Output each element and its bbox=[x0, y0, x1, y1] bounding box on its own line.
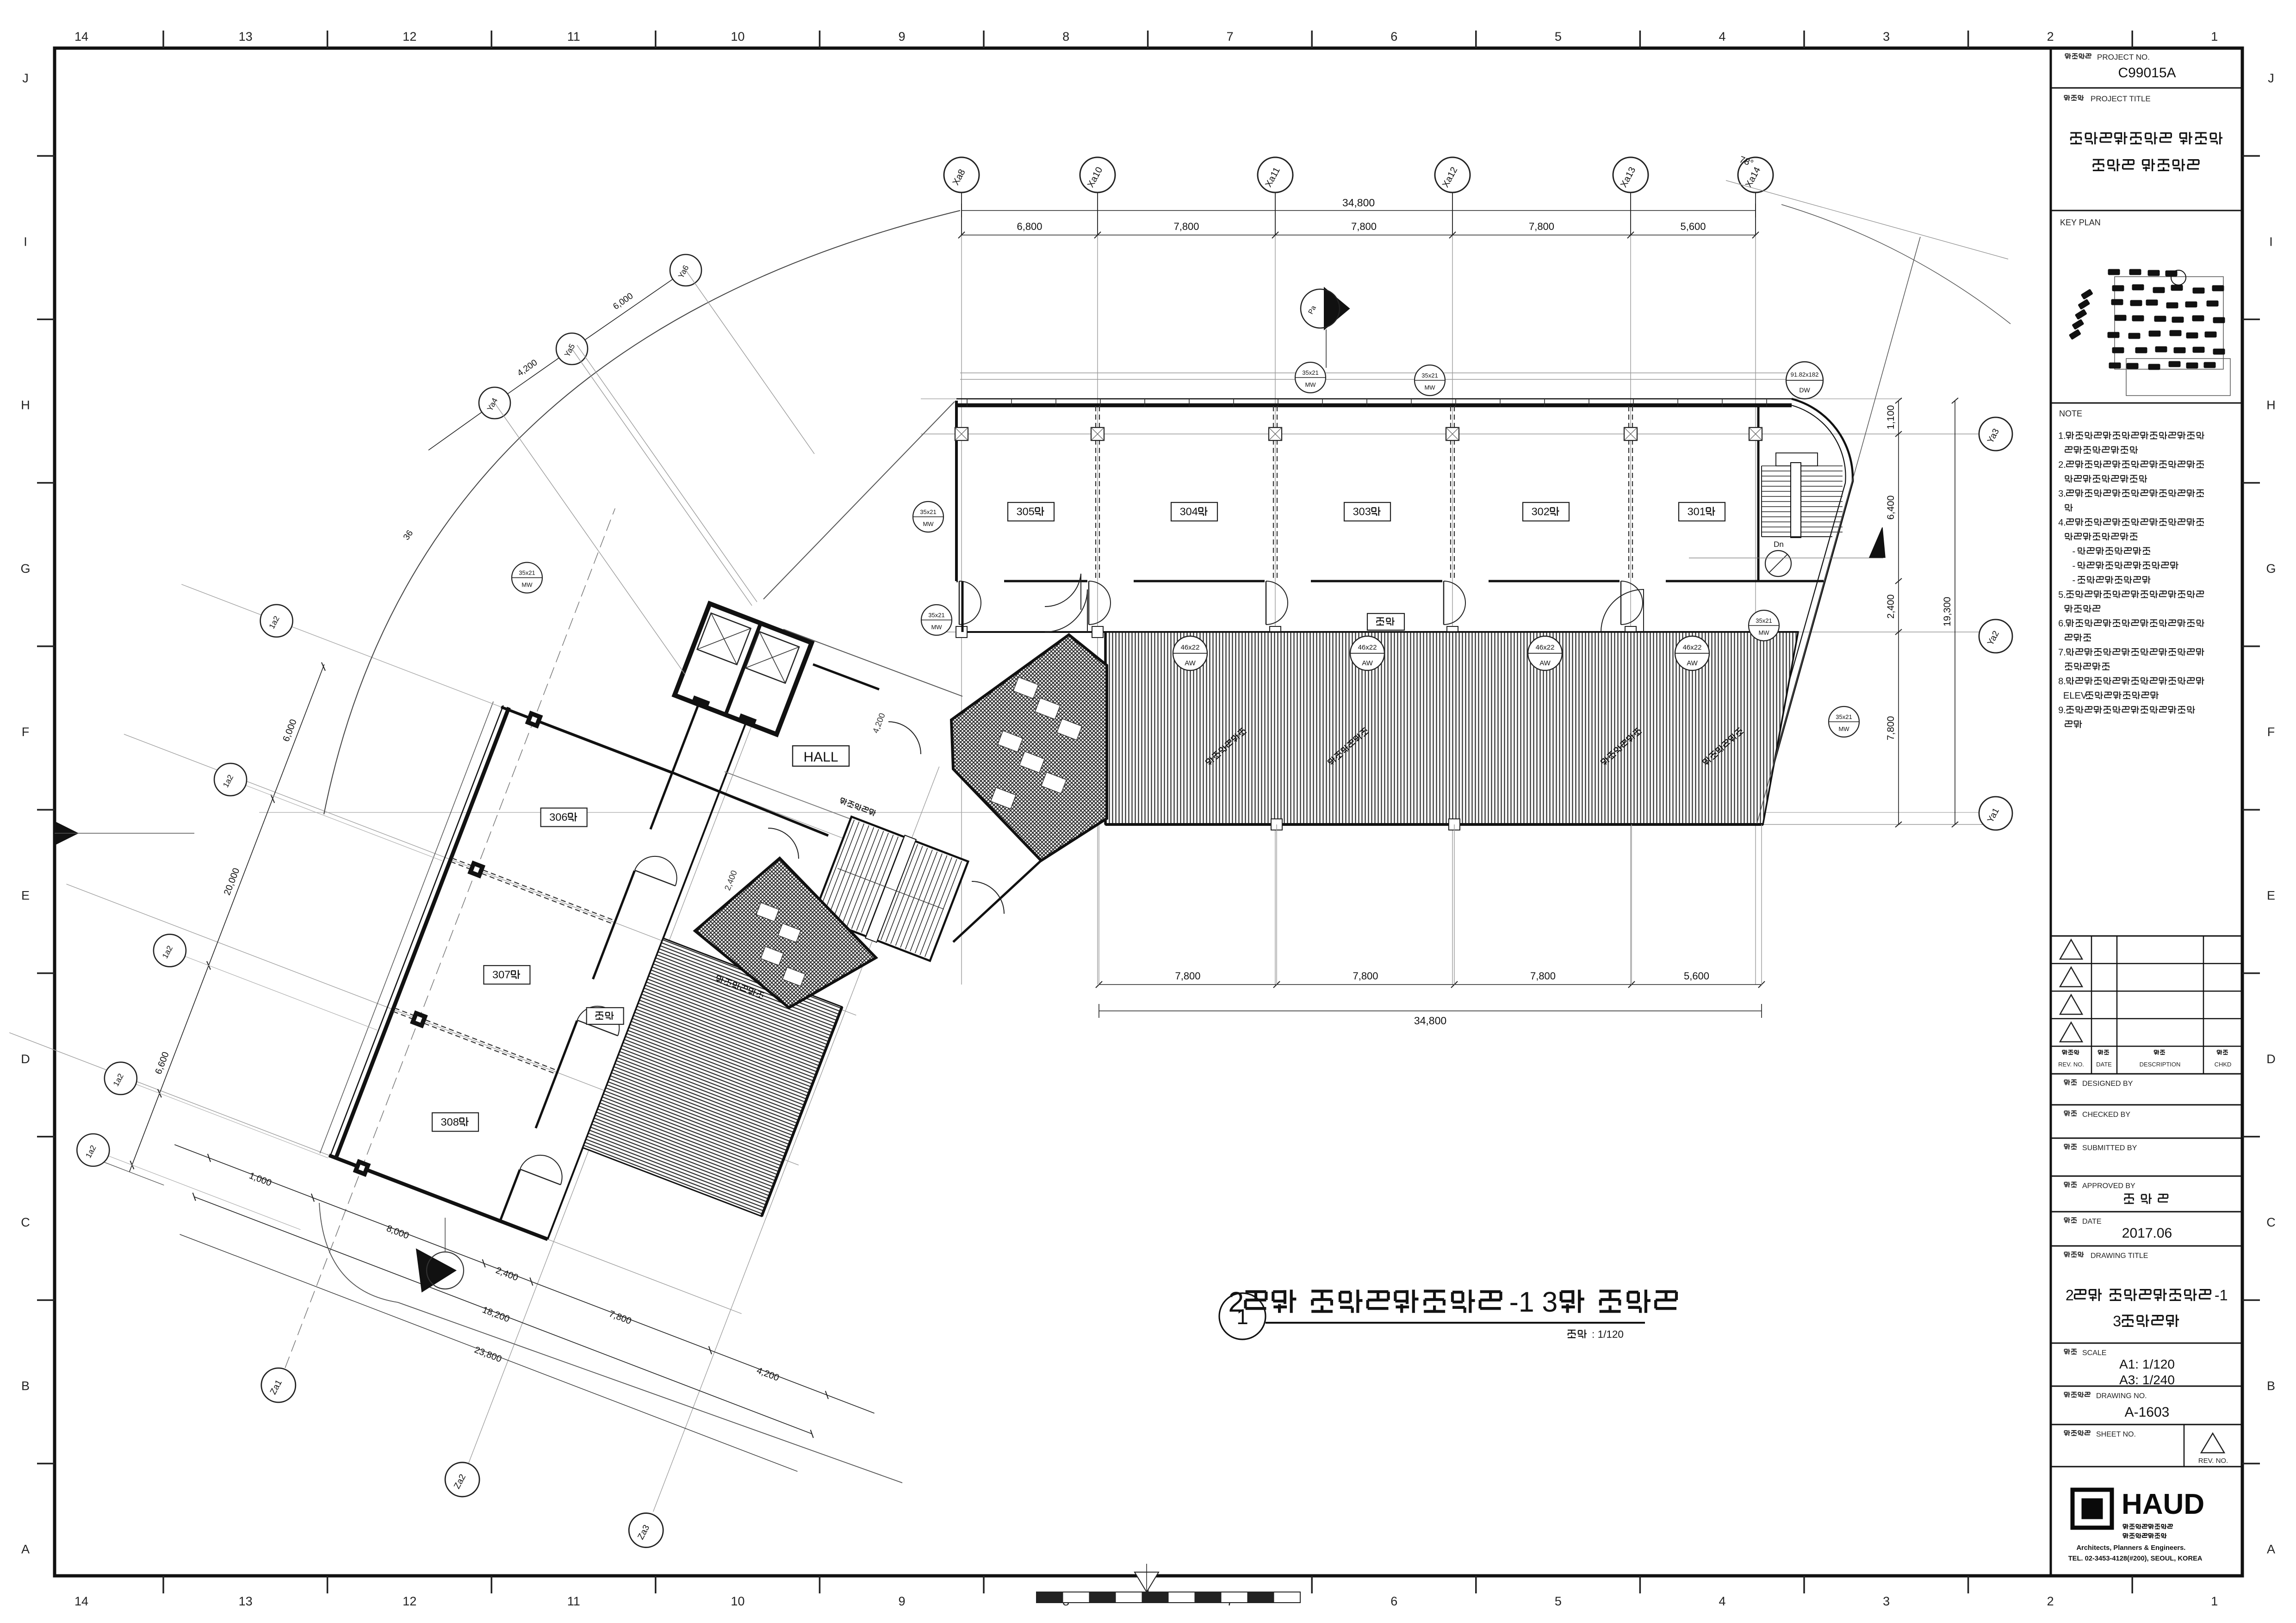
svg-text:5: 5 bbox=[1555, 1594, 1562, 1608]
svg-text:5: 5 bbox=[1555, 30, 1562, 43]
svg-text:TEL. 02-3453-4128(#200), SEOUL: TEL. 02-3453-4128(#200), SEOUL, KOREA bbox=[2068, 1555, 2203, 1562]
svg-text:Architects, Planners & Enginee: Architects, Planners & Engineers. bbox=[2076, 1544, 2185, 1552]
svg-text:AW: AW bbox=[1362, 659, 1373, 667]
svg-text:REV. NO.: REV. NO. bbox=[2058, 1061, 2084, 1068]
svg-text:KEY PLAN: KEY PLAN bbox=[2060, 218, 2101, 227]
svg-text:13: 13 bbox=[239, 1594, 253, 1608]
svg-text:34,800: 34,800 bbox=[1342, 197, 1375, 209]
svg-text:3: 3 bbox=[2113, 1313, 2121, 1330]
svg-text:305: 305 bbox=[1017, 506, 1035, 518]
svg-text:C: C bbox=[2266, 1215, 2276, 1229]
svg-text:-: - bbox=[2072, 561, 2075, 571]
svg-text:2: 2 bbox=[2047, 1594, 2054, 1608]
svg-text:5,600: 5,600 bbox=[1684, 970, 1709, 982]
svg-text:2: 2 bbox=[1228, 1286, 1244, 1318]
svg-text:NOTE: NOTE bbox=[2059, 409, 2082, 418]
svg-text:SUBMITTED BY: SUBMITTED BY bbox=[2082, 1144, 2137, 1152]
svg-text:14: 14 bbox=[74, 1594, 88, 1608]
svg-text:AW: AW bbox=[1687, 659, 1698, 667]
svg-text:12: 12 bbox=[403, 30, 416, 43]
svg-text:1: 1 bbox=[2211, 30, 2218, 43]
svg-text:DRAWING TITLE: DRAWING TITLE bbox=[2091, 1252, 2148, 1260]
svg-text:MW: MW bbox=[923, 520, 934, 527]
svg-text:303: 303 bbox=[1353, 506, 1371, 518]
svg-text:13: 13 bbox=[239, 30, 253, 43]
svg-text:-1 3: -1 3 bbox=[1509, 1286, 1558, 1318]
svg-text:MW: MW bbox=[1758, 629, 1769, 636]
svg-text:19,300: 19,300 bbox=[1942, 597, 1953, 626]
svg-text:7: 7 bbox=[1227, 30, 1234, 43]
svg-text:-: - bbox=[2072, 546, 2075, 557]
svg-text:MW: MW bbox=[931, 624, 942, 631]
svg-text:3: 3 bbox=[1883, 30, 1890, 43]
svg-text:7,800: 7,800 bbox=[1175, 970, 1200, 982]
svg-text:E: E bbox=[21, 889, 30, 903]
svg-text:10: 10 bbox=[731, 30, 745, 43]
svg-text:H: H bbox=[21, 398, 30, 412]
svg-text:10: 10 bbox=[731, 1594, 745, 1608]
svg-text:PROJECT NO.: PROJECT NO. bbox=[2097, 53, 2150, 62]
svg-text:F: F bbox=[22, 725, 30, 739]
svg-text:DESIGNED BY: DESIGNED BY bbox=[2082, 1080, 2133, 1088]
svg-text:G: G bbox=[2266, 562, 2276, 576]
svg-text:5,600: 5,600 bbox=[1680, 221, 1706, 232]
svg-text:3.: 3. bbox=[2058, 489, 2066, 499]
svg-text:APPROVED BY: APPROVED BY bbox=[2082, 1182, 2135, 1190]
svg-text:ELEV: ELEV bbox=[2063, 691, 2087, 701]
svg-text:4.: 4. bbox=[2058, 518, 2066, 528]
svg-text:46x22: 46x22 bbox=[1181, 644, 1200, 651]
svg-text:-1: -1 bbox=[2215, 1287, 2228, 1304]
svg-text:MW: MW bbox=[521, 582, 533, 588]
svg-text:308: 308 bbox=[441, 1116, 459, 1128]
svg-text:6: 6 bbox=[1390, 1594, 1397, 1608]
svg-text:35x21: 35x21 bbox=[1756, 617, 1772, 624]
svg-text:REV. NO.: REV. NO. bbox=[2198, 1457, 2228, 1465]
svg-text:6.: 6. bbox=[2058, 619, 2066, 629]
svg-text:8: 8 bbox=[1062, 30, 1069, 43]
svg-text:35x21: 35x21 bbox=[928, 612, 944, 619]
svg-text:35x21: 35x21 bbox=[1302, 369, 1318, 376]
svg-text:J: J bbox=[22, 71, 29, 85]
svg-text:-: - bbox=[2072, 576, 2075, 586]
svg-text:CHECKED BY: CHECKED BY bbox=[2082, 1111, 2130, 1119]
svg-text:6,400: 6,400 bbox=[1886, 496, 1896, 520]
svg-text:5.: 5. bbox=[2058, 590, 2066, 600]
svg-text:H: H bbox=[2266, 398, 2276, 412]
svg-text:: 1/120: : 1/120 bbox=[1592, 1328, 1624, 1340]
svg-text:35x21: 35x21 bbox=[519, 570, 535, 576]
svg-text:46x22: 46x22 bbox=[1536, 644, 1555, 651]
svg-text:35x21: 35x21 bbox=[920, 508, 936, 515]
svg-text:35x21: 35x21 bbox=[1421, 372, 1438, 379]
svg-text:3: 3 bbox=[1883, 1594, 1890, 1608]
svg-text:307: 307 bbox=[492, 969, 510, 981]
svg-text:A: A bbox=[2267, 1542, 2275, 1556]
svg-text:14: 14 bbox=[74, 30, 88, 43]
svg-text:B: B bbox=[21, 1379, 30, 1393]
svg-text:A: A bbox=[21, 1542, 30, 1556]
svg-text:DRAWING NO.: DRAWING NO. bbox=[2096, 1392, 2147, 1400]
svg-text:91.82x182: 91.82x182 bbox=[1791, 371, 1819, 378]
svg-text:F: F bbox=[2267, 725, 2275, 739]
svg-text:I: I bbox=[24, 235, 27, 248]
svg-text:7,800: 7,800 bbox=[1529, 221, 1554, 232]
svg-text:7,800: 7,800 bbox=[1173, 221, 1199, 232]
svg-text:2.: 2. bbox=[2058, 460, 2066, 470]
svg-text:AW: AW bbox=[1539, 659, 1551, 667]
svg-text:4: 4 bbox=[1719, 1594, 1725, 1608]
svg-text:B: B bbox=[2267, 1379, 2275, 1393]
svg-text:A1: 1/120: A1: 1/120 bbox=[2119, 1357, 2175, 1371]
svg-text:C: C bbox=[21, 1215, 30, 1229]
svg-text:AW: AW bbox=[1185, 659, 1196, 667]
svg-text:DATE: DATE bbox=[2096, 1061, 2112, 1068]
svg-text:7,800: 7,800 bbox=[1886, 716, 1896, 741]
svg-text:2: 2 bbox=[2066, 1287, 2074, 1304]
svg-text:7,800: 7,800 bbox=[1530, 970, 1556, 982]
svg-text:304: 304 bbox=[1180, 506, 1198, 518]
svg-text:9.: 9. bbox=[2058, 705, 2066, 715]
svg-text:6: 6 bbox=[1390, 30, 1397, 43]
svg-text:7.: 7. bbox=[2058, 648, 2066, 658]
svg-text:8.: 8. bbox=[2058, 676, 2066, 687]
svg-text:12: 12 bbox=[403, 1594, 416, 1608]
svg-text:301: 301 bbox=[1688, 506, 1706, 518]
svg-text:CHKD: CHKD bbox=[2215, 1061, 2232, 1068]
svg-text:D: D bbox=[21, 1052, 30, 1066]
svg-text:PROJECT TITLE: PROJECT TITLE bbox=[2091, 94, 2151, 103]
svg-text:7,800: 7,800 bbox=[1353, 970, 1378, 982]
svg-text:4: 4 bbox=[1719, 30, 1725, 43]
svg-text:2: 2 bbox=[2047, 30, 2054, 43]
svg-text:34,800: 34,800 bbox=[1414, 1015, 1446, 1027]
svg-text:35x21: 35x21 bbox=[1836, 713, 1852, 720]
svg-text:HAUD: HAUD bbox=[2122, 1488, 2204, 1520]
svg-text:6,800: 6,800 bbox=[1017, 221, 1042, 232]
svg-text:DW: DW bbox=[1799, 386, 1810, 394]
svg-text:G: G bbox=[20, 562, 30, 576]
svg-text:DATE: DATE bbox=[2082, 1218, 2101, 1226]
svg-text:1.: 1. bbox=[2058, 431, 2066, 441]
svg-text:9: 9 bbox=[898, 30, 905, 43]
svg-text:2,400: 2,400 bbox=[1886, 595, 1896, 619]
svg-text:MW: MW bbox=[1838, 725, 1849, 732]
svg-text:1: 1 bbox=[2211, 1594, 2218, 1608]
svg-text:E: E bbox=[2267, 889, 2275, 903]
svg-text:46x22: 46x22 bbox=[1358, 644, 1377, 651]
svg-text:11: 11 bbox=[567, 30, 580, 43]
svg-text:7,800: 7,800 bbox=[1351, 221, 1377, 232]
svg-text:1,100: 1,100 bbox=[1886, 405, 1896, 430]
svg-text:SHEET NO.: SHEET NO. bbox=[2096, 1431, 2136, 1438]
svg-text:D: D bbox=[2266, 1052, 2276, 1066]
svg-text:Dn: Dn bbox=[1774, 540, 1784, 549]
svg-text:HALL: HALL bbox=[803, 750, 838, 765]
svg-text:302: 302 bbox=[1532, 506, 1550, 518]
svg-text:46x22: 46x22 bbox=[1683, 644, 1702, 651]
svg-text:A-1603: A-1603 bbox=[2125, 1405, 2170, 1420]
svg-text:MW: MW bbox=[1424, 384, 1435, 391]
svg-text:A3: 1/240: A3: 1/240 bbox=[2119, 1373, 2175, 1387]
svg-text:306: 306 bbox=[549, 811, 567, 823]
svg-text:SCALE: SCALE bbox=[2082, 1349, 2106, 1357]
svg-text:MW: MW bbox=[1305, 381, 1316, 388]
svg-text:2017.06: 2017.06 bbox=[2122, 1226, 2172, 1241]
svg-text:DESCRIPTION: DESCRIPTION bbox=[2140, 1061, 2181, 1068]
svg-text:I: I bbox=[2269, 235, 2273, 248]
svg-text:9: 9 bbox=[898, 1594, 905, 1608]
svg-text:11: 11 bbox=[567, 1594, 580, 1608]
svg-text:C99015A: C99015A bbox=[2118, 65, 2176, 81]
svg-text:J: J bbox=[2268, 71, 2274, 85]
